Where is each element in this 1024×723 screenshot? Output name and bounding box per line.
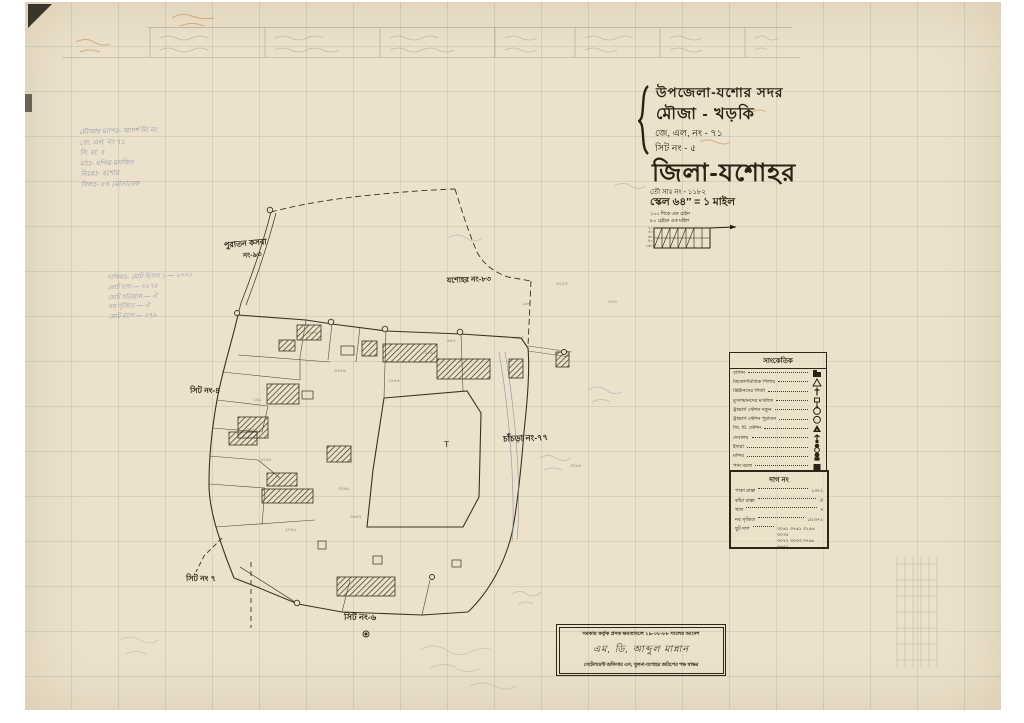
legend-leader-dots [768,391,808,392]
plot-leader-dots [758,498,817,499]
plot-number: ৩০৪৮ [338,486,350,493]
legend-item-label: দেবালয় [733,435,749,443]
plot-legend-label: নব সৃজিত [735,517,755,525]
pencil-scribbles [448,184,646,605]
handwritten-note-top-left: মৌজার ম্যাপঃ- আদর্শ লি নংজে. এল. নং ৭১সি… [79,126,158,191]
map-place-label: সিট নং-৪ [190,385,220,398]
legend-row: ত্রিকোণমিতিক পিলার [730,378,826,387]
map-place-label: চাঁচড়া নং-৭৭ [503,431,549,447]
mouza-boundary [209,212,572,615]
plot-number: ৪৫৪৩ [512,335,524,342]
handwritten-line: সিলঃ- ৮৪ মোতাবেক [81,178,159,191]
plot-legend-value: ১/১৩৭২ [807,517,823,523]
legend-leader-dots [778,381,808,382]
legend-leader-dots [775,409,809,410]
plot-legend-row: নব সৃজিত১/১৩৭২ [731,517,827,525]
plot-number: ৩৬৪২ [350,514,362,521]
graphite-scribbles [120,637,516,689]
legend-leader-dots [764,428,808,429]
plot-leader-dots [758,517,804,518]
plot-number-legend-box: দাগ নং পাকা রাস্তা১৩৭২কাঁচা রাস্তাঐখাল×ন… [729,470,829,549]
plot-legend-row: পাকা রাস্তা১৩৭২ [731,488,827,496]
traverse-station-marks [235,207,567,637]
scanned-mouza-map: T [0,0,1024,723]
legend-item-label: ট্রাভার্স স্টেশন পুরাতন [733,416,776,424]
plot-legend-rows: পাকা রাস্তা১৩৭২কাঁচা রাস্তাঐখাল×নব সৃজিত… [731,488,827,549]
legend-leader-dots [779,419,808,420]
plot-legend-label: খাল [735,507,743,515]
legend-row: খ্রিষ্টানদের গির্জা [730,388,826,397]
stamp-line-3: সেটেলমেন্ট অফিসার এস, খুলনা-যশোহর জরিপের… [584,662,699,670]
plot-legend-value: ৩০৬১ ৩৭৬১ ৩১৫৬ ৩০৩৫ ৩০৭২ ৩০৩৩ ৩৭৬৮ ৩৬৪২ [777,526,823,549]
scale-bar-labels: ২০৪০৬০৮০১৬০ [641,226,653,248]
plot-leader-dots [758,488,808,489]
plot-legend-value: ঐ [819,498,823,504]
legend-title: সাংকেতিক [730,353,826,369]
top-annotation-strip [62,28,800,58]
plot-legend-value: ১৩৭২ [811,488,823,494]
legend-rows: বাগানত্রিকোণমিতিক পিলারখ্রিষ্টানদের গির্… [730,369,826,471]
diagonal-scale-bar [654,225,736,248]
plot-legend-row: ছুট দাগ৩০৬১ ৩৭৬১ ৩১৫৬ ৩০৩৫ ৩০৭২ ৩০৩৩ ৩৭৬… [731,526,827,549]
plot-legend-row: কাঁচা রাস্তাঐ [731,498,827,506]
legend-item-label: ট্রাভার্স স্টেশন নতুন [733,407,772,415]
legend-leader-dots [747,447,808,448]
plot-number: ৩৮৪১ [246,427,258,434]
map-place-label: যশোহর নং-৮৩ [447,274,491,288]
legend-row: ইদারা [730,443,826,452]
plot-number: ৩১৪২ [424,350,436,357]
plot-number: ১০৪৮ [260,457,272,464]
handwritten-line: মৌজার ম্যাপঃ- আদর্শ লি নং [79,126,157,139]
plot-number: ৬৫৪ [447,338,456,345]
legend-item-label: খ্রিষ্টানদের গির্জা [733,388,765,396]
stamp-signature: এম, ডি, আব্দুল মান্নান [593,643,689,658]
plot-number: ২০৪১ [285,527,297,534]
legend-leader-dots [747,456,808,457]
map-place-label: নং-৯৩ [243,248,263,262]
jl-number: জে, এল, নং - ৭১ [655,127,723,142]
legend-leader-dots [776,400,808,401]
legend-item-label: ইদারা [733,444,744,452]
plot-leader-dots [753,526,775,527]
legend-row: মুসলমানদের মসজিদ [730,397,826,406]
plot-legend-row: খাল× [731,507,827,515]
legend-leader-dots [748,372,808,373]
title-brace [638,84,652,156]
plot-legend-title: দাগ নং [731,472,827,488]
map-place-label: সিট নং-৬ [344,611,376,625]
settlement-stamp-box: সরকার কর্তৃক প্রদত্ত ক্ষমতাবলে ১৯-০৮-৮৮ … [556,624,726,676]
legend-leader-dots [752,437,808,438]
stamp-line-1: সরকার কর্তৃক প্রদত্ত ক্ষমতাবলে ১৯-০৮-৮৮ … [582,631,699,639]
plot-number: ১৬৭ [522,301,531,308]
legend-item-label: মন্দির [733,453,744,461]
plot-number: ৩০৩৫ [306,330,318,337]
scale-text: স্কেল ৬৪″ = ১ মাইল [650,195,735,212]
plot-number: ১৭৪৬ [388,378,400,385]
legend-row: মন্দির [730,453,826,462]
legend-item-label: ত্রিকোণমিতিক পিলার [733,379,775,387]
plot-legend-label: ছুট দাগ [735,526,750,534]
plot-leader-dots [746,507,817,508]
cadastral-map-drawing: T [0,0,1024,723]
hatched-buildings [229,325,569,596]
plot-number: ৩৫৪৬ [334,368,346,375]
plot-number: ২৪১ [253,397,262,404]
plot-number: ৩০৪৫ [570,463,582,470]
scale-bar-tick-label: ১৬০ [641,244,653,248]
legend-row: জি. টি. স্টেশন [730,425,826,434]
plot-number: ৪০৩ [608,299,617,306]
symbol-legend-box: সাংকেতিক বাগানত্রিকোণমিতিক পিলারখ্রিষ্টা… [729,352,827,471]
handwritten-note-mid-left: দাখিলঃ- মোট হিসাব ১ — ২০০১মোট দাগ — ৩২৭৪… [107,271,194,323]
legend-leader-dots [755,465,808,466]
plot-legend-label: পাকা রাস্তা [735,488,755,496]
central-compound-plot: T [367,391,481,527]
plot-legend-label: কাঁচা রাস্তা [735,498,755,506]
scale-note-2: ৮০ চেইনে এক মাইল [650,218,689,225]
legend-row: বাগান [730,369,826,378]
legend-row: ট্রাভার্স স্টেশন নতুন [730,406,826,415]
legend-item-label: মুসলমানদের মসজিদ [733,398,773,406]
svg-text:T: T [443,440,449,449]
legend-item-label: বাগান [733,370,745,378]
legend-row: দেবালয় [730,434,826,443]
map-place-label: সিট নং ৭ [186,573,216,586]
margin-table-strip [897,556,937,668]
plot-division-lines [209,320,463,615]
mouza-title: মৌজা - খড়কি [656,101,755,128]
plot-legend-value: × [820,507,823,513]
legend-row: ট্রাভার্স স্টেশন পুরাতন [730,415,826,424]
plot-number: ৪২০৩ [556,281,568,288]
legend-item-label: জি. টি. স্টেশন [733,425,761,433]
